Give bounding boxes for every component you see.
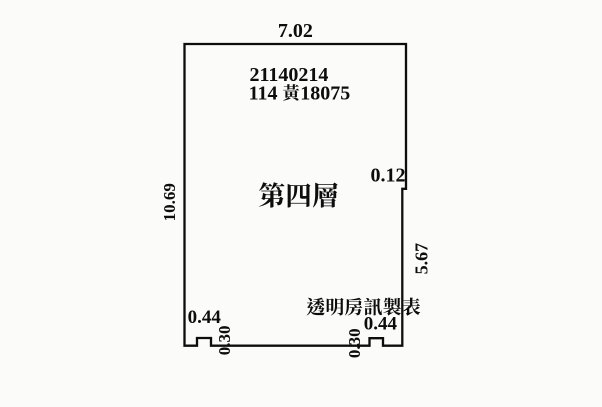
svg-text:0.44: 0.44	[188, 307, 222, 328]
svg-text:10.69: 10.69	[160, 183, 179, 221]
svg-text:5.67: 5.67	[412, 243, 432, 275]
svg-text:0.44: 0.44	[364, 313, 398, 334]
svg-text:0.30: 0.30	[345, 328, 364, 358]
svg-text:0.12: 0.12	[371, 164, 406, 186]
svg-text:7.02: 7.02	[278, 20, 313, 42]
svg-text:18075: 18075	[300, 83, 350, 105]
svg-text:114: 114	[249, 83, 278, 105]
svg-text:0.30: 0.30	[215, 326, 234, 356]
